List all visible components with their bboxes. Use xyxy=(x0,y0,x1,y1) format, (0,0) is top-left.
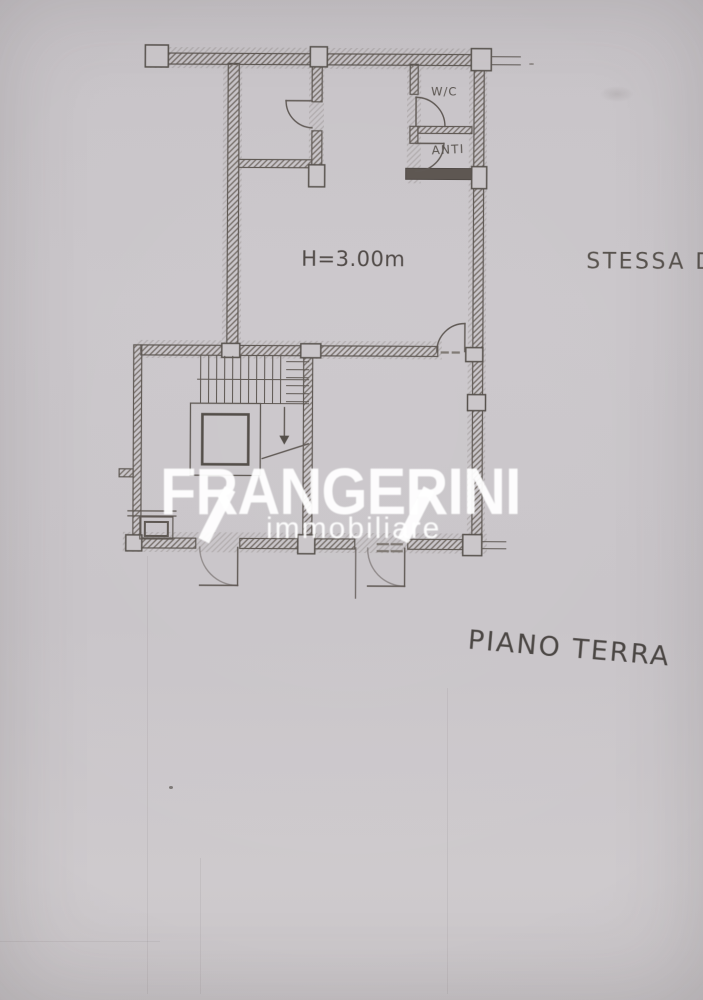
agency-tagline: immobiliare xyxy=(266,514,441,544)
junction-left-mid xyxy=(222,343,240,357)
room1-right-wall-upper xyxy=(312,64,322,102)
paper-smudge xyxy=(600,86,634,102)
wc-anti-divider-wall xyxy=(418,126,472,133)
room1-bottom-wall xyxy=(239,159,312,167)
pier-anti xyxy=(472,167,487,189)
room1-door xyxy=(286,101,312,128)
pier-room1 xyxy=(309,165,325,187)
column-top-mid xyxy=(310,47,327,67)
stair-left-ledge xyxy=(119,469,133,477)
column-top-left xyxy=(145,45,168,67)
wc-label: W/C xyxy=(431,84,457,98)
agency-watermark: FRANGERINI immobiliare xyxy=(160,458,580,558)
staircase xyxy=(191,356,309,404)
ceiling-height-label: H=3.00m xyxy=(301,247,405,272)
anti-bottom-wall xyxy=(406,168,476,179)
wc-left-wall-upper xyxy=(410,64,418,94)
left-wall xyxy=(227,63,239,347)
floor-plan-photo: W/C ANTI H=3.00m STESSA D PIANO TERRA FR… xyxy=(0,0,703,1000)
adjacent-property-note: STESSA D xyxy=(586,249,703,275)
middle-wall xyxy=(141,345,438,357)
anteroom-label: ANTI xyxy=(431,142,464,158)
room1-right-wall-lower xyxy=(312,131,322,168)
floor-title: PIANO TERRA xyxy=(467,625,672,673)
junction-stair-mid xyxy=(301,344,321,358)
junction-right-mid xyxy=(466,348,483,362)
column-top-right xyxy=(471,49,491,71)
stair-left-wall xyxy=(133,345,142,538)
pier-right-wall xyxy=(467,395,485,411)
stair-direction-arrow xyxy=(262,408,308,459)
wc-left-wall-lower xyxy=(410,126,418,143)
